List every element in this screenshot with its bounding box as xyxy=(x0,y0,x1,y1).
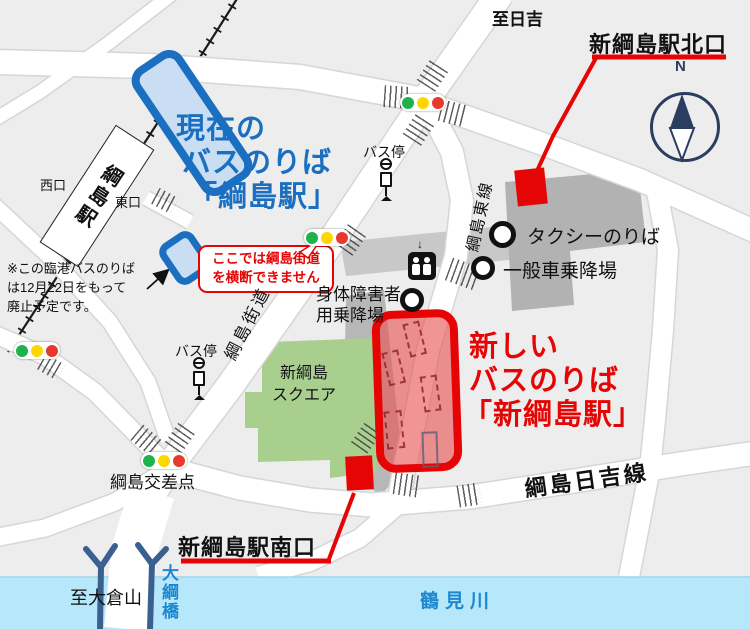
current-title-line1: 現在の xyxy=(176,112,338,146)
crosswalk xyxy=(456,482,481,507)
crosswalk xyxy=(393,472,422,497)
general-car-label: 一般車乗降場 xyxy=(503,256,617,283)
traffic-light xyxy=(14,342,60,359)
disabled-stop-circle xyxy=(400,288,424,312)
taxi-stand-label: タクシーのりば xyxy=(527,222,660,249)
traffic-light xyxy=(141,452,187,469)
bus-bay xyxy=(420,375,442,413)
bus-bay xyxy=(421,431,438,468)
new-title-line1: 新しい xyxy=(469,330,643,364)
bus-bay xyxy=(402,320,427,357)
warning-line2: を横断できません xyxy=(206,269,326,288)
compass-north-label: N xyxy=(675,58,686,75)
south-exit-square xyxy=(345,455,374,490)
north-exit-square xyxy=(514,168,548,207)
new-busstop-area xyxy=(371,309,463,474)
river-label: 鶴見川 xyxy=(420,586,495,613)
note-line3: 廃止予定です。 xyxy=(7,297,135,316)
bridge-label: 大綱橋 xyxy=(156,564,181,621)
note-line1: ※この臨港バスのりば xyxy=(7,259,135,278)
to-hiyoshi-label: 至日吉 xyxy=(492,5,543,30)
to-okurayama-label: 至大倉山 xyxy=(70,584,142,610)
disabled-stop-label: 身体障害者 用乗降場 xyxy=(316,284,401,326)
busstop-pole-icon xyxy=(379,158,395,202)
current-title-line3: 「綱島駅」 xyxy=(188,180,338,214)
new-title-line3: 「新綱島駅」 xyxy=(463,398,643,432)
taxi-stand-circle xyxy=(489,221,516,248)
elevator-down-arrow: ↓ xyxy=(417,237,423,251)
disabled-label-line1: 身体障害者 xyxy=(316,284,401,305)
rinko-note: ※この臨港バスのりば は12月22日をもって 廃止予定です。 xyxy=(7,259,135,316)
bus-bay xyxy=(383,410,405,450)
square-building-label: 新綱島 スクエア xyxy=(246,363,362,407)
square-label-line1: 新綱島 xyxy=(246,363,362,385)
traffic-light xyxy=(400,94,446,111)
west-exit-label: 西口 xyxy=(40,175,66,194)
new-busstop-title: 新しい バスのりば 「新綱島駅」 xyxy=(463,330,643,432)
traffic-light xyxy=(304,229,350,246)
busstop-pole-icon xyxy=(192,357,208,401)
east-exit-label: 東口 xyxy=(115,192,141,211)
new-title-line2: バスのりば xyxy=(469,364,643,398)
disabled-label-line2: 用乗降場 xyxy=(316,305,401,326)
elevator-box xyxy=(408,252,436,280)
elevator-icon: ↓ xyxy=(408,240,438,284)
note-arrow xyxy=(147,271,167,289)
general-car-circle xyxy=(471,256,495,280)
bus-bay xyxy=(381,349,406,386)
note-line2: は12月22日をもって xyxy=(7,278,135,297)
square-label-line2: スクエア xyxy=(246,385,362,407)
south-exit-label: 新綱島駅南口 xyxy=(178,530,316,562)
compass xyxy=(650,92,720,162)
tsunashima-busstop-guide-map: 綱島駅 西口 東口 現在の バスのりば 「綱島駅」 ※この臨港バスのりば は12… xyxy=(0,0,750,629)
current-title-line2: バスのりば xyxy=(182,146,338,180)
current-busstop-title: 現在の バスのりば 「綱島駅」 xyxy=(176,112,338,214)
north-exit-label: 新綱島駅北口 xyxy=(589,27,727,59)
intersection-label: 綱島交差点 xyxy=(110,468,195,493)
